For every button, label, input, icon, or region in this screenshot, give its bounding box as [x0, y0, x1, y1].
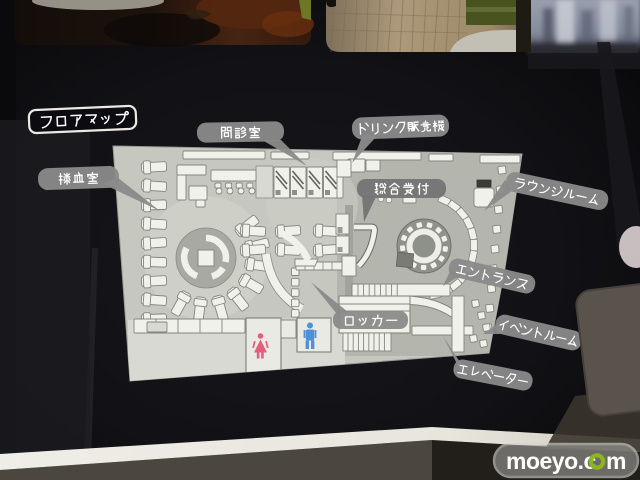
svg-text:m: m: [606, 448, 626, 474]
svg-text:moeyo.c: moeyo.c: [506, 448, 597, 474]
